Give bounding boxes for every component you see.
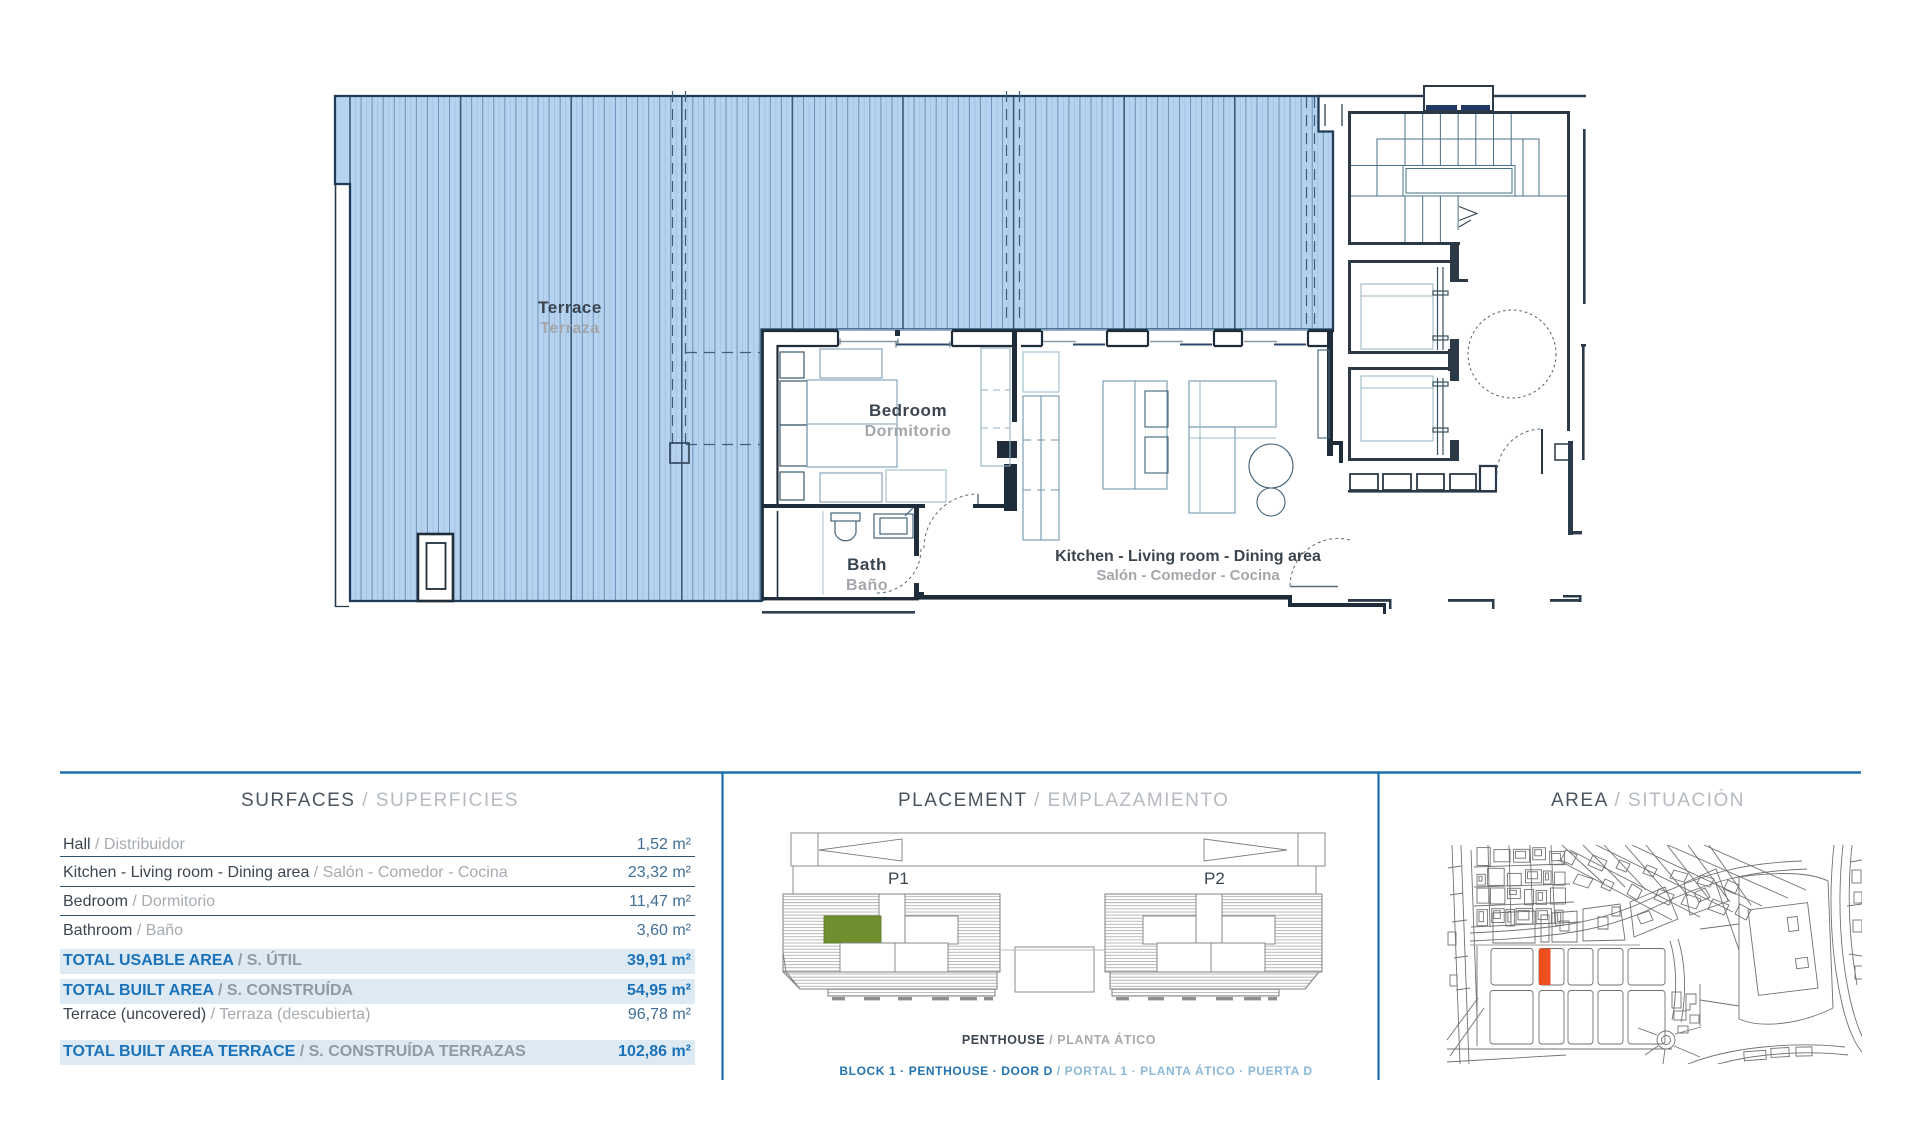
svg-text:Salón - Comedor - Cocina: Salón - Comedor - Cocina [1096,567,1280,584]
svg-text:P1: P1 [888,869,909,888]
svg-text:Kitchen - Living room - Dining: Kitchen - Living room - Dining area [1055,548,1321,565]
svg-text:Baño: Baño [846,577,888,594]
svg-text:Terrace: Terrace [538,298,602,317]
svg-text:Terraza: Terraza [540,320,599,337]
svg-text:Dormitorio: Dormitorio [865,423,952,440]
svg-text:P2: P2 [1204,869,1225,888]
svg-text:Bath: Bath [847,555,887,574]
svg-text:Bedroom: Bedroom [869,401,947,420]
